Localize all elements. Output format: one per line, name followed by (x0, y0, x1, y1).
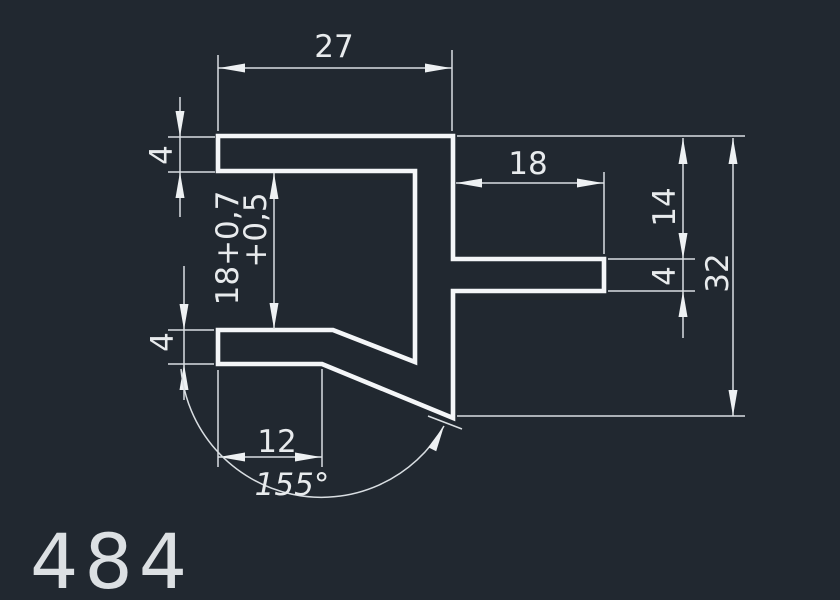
dim-arm-offset-label: 14 (647, 187, 683, 226)
dim-inner-height-label-line2: +0,5 (238, 192, 274, 267)
dim-top-flange-label: 4 (144, 145, 180, 165)
dim-top-width-label: 27 (314, 29, 353, 65)
technical-drawing: 27 4 18+0,7 +0,5 18 14 4 (0, 0, 840, 600)
dim-arm-length-label: 18 (508, 146, 547, 182)
canvas-background (0, 0, 840, 600)
part-number-label: 484 (30, 517, 193, 600)
dim-overall-height-label: 32 (700, 253, 736, 292)
dim-bottom-flange-label: 4 (145, 332, 181, 352)
dim-arm-thickness-label: 4 (647, 266, 683, 286)
dim-bend-angle-label: 155° (255, 467, 330, 503)
cad-canvas: 27 4 18+0,7 +0,5 18 14 4 (0, 0, 840, 600)
dim-bottom-flat-label: 12 (257, 424, 296, 460)
